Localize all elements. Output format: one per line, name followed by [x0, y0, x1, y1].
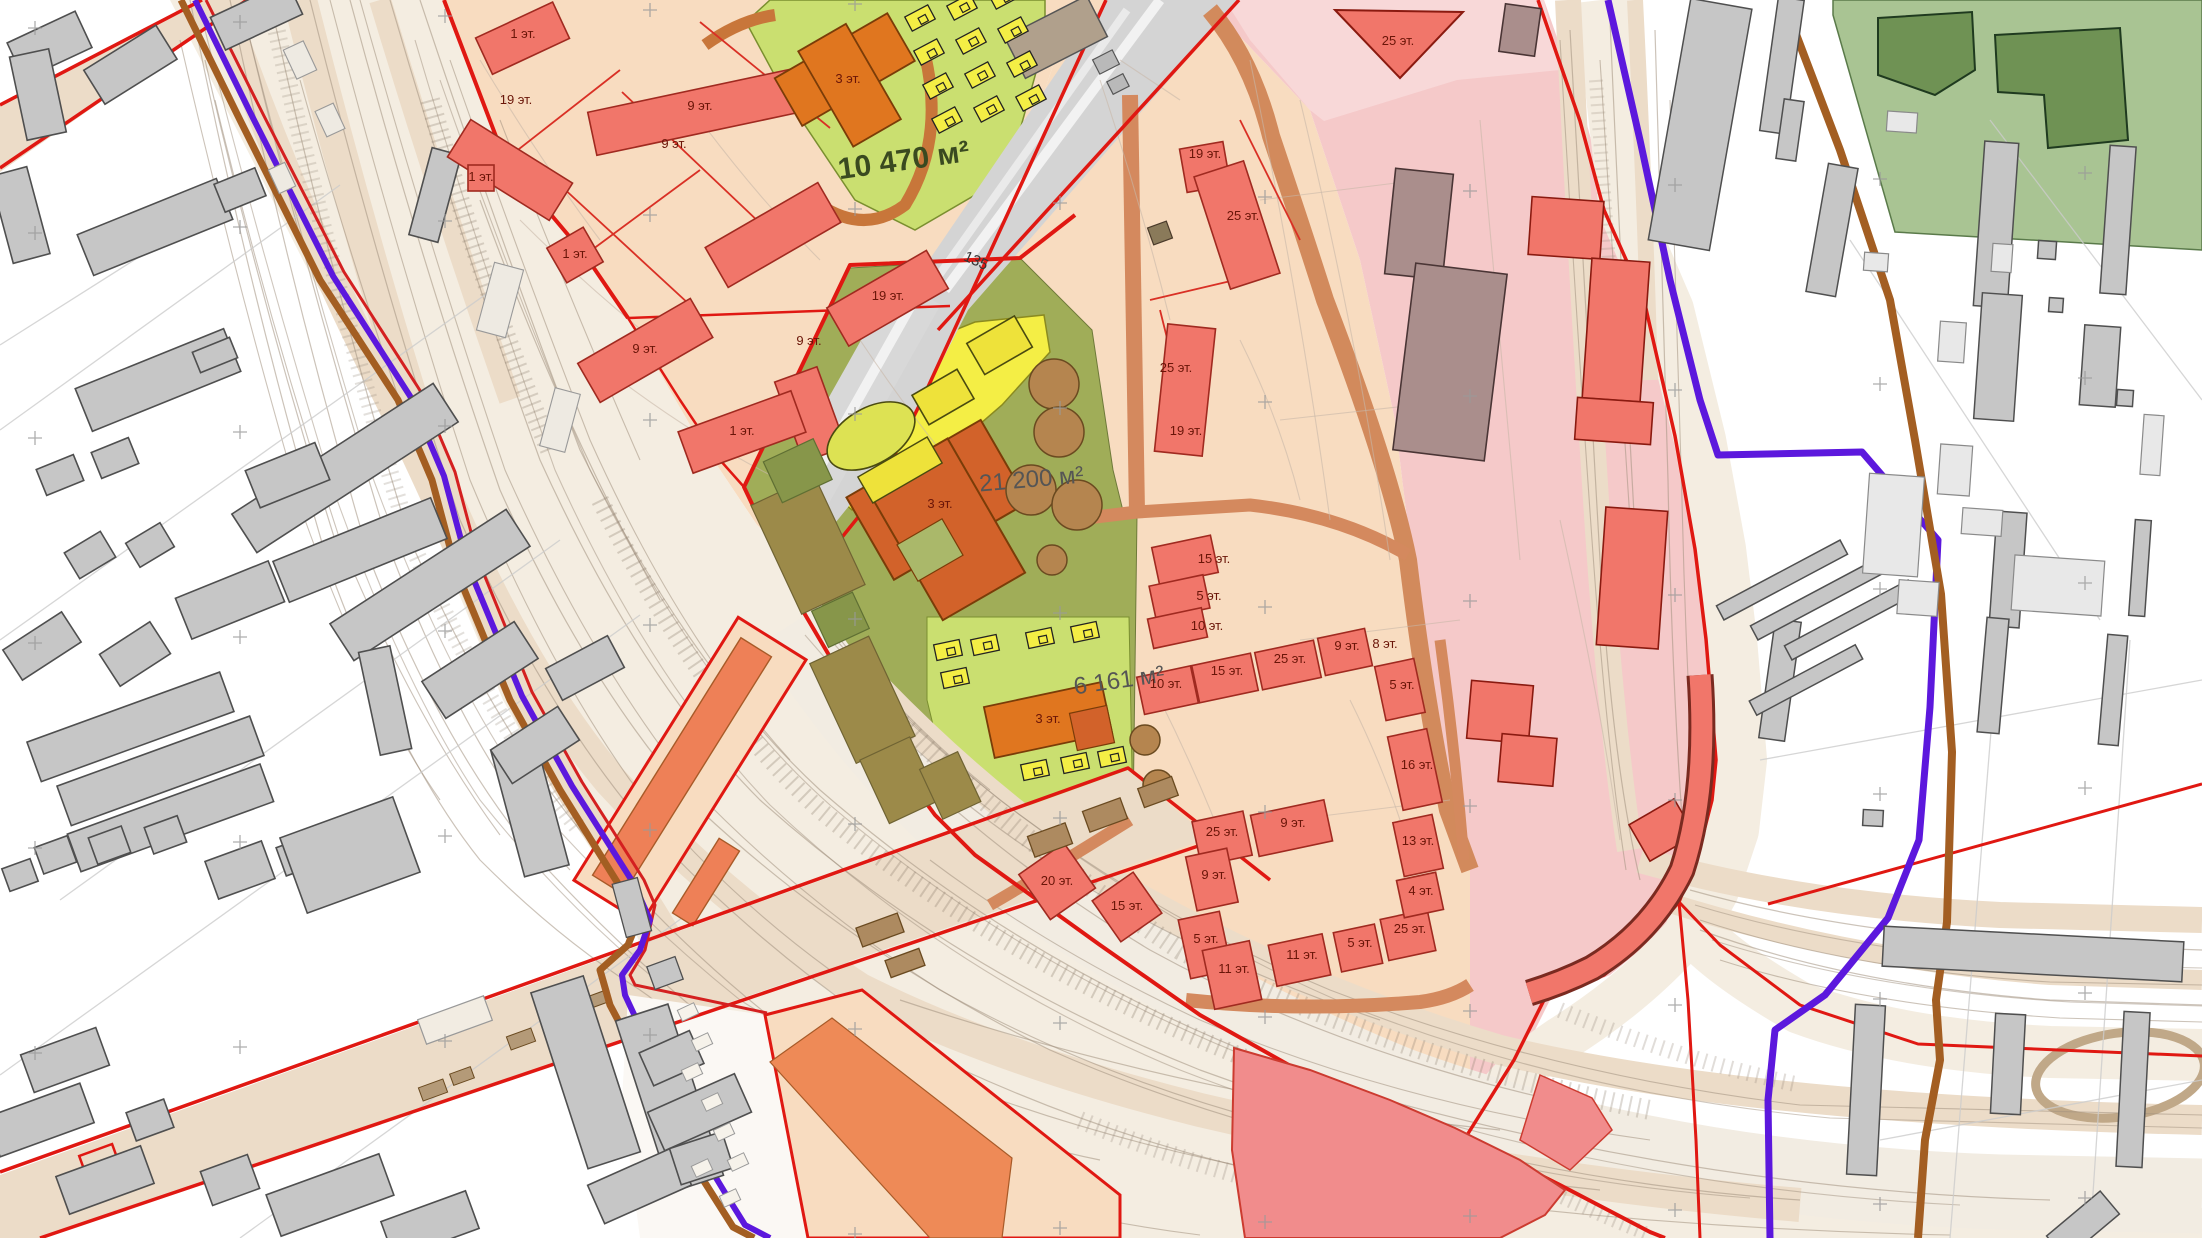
svg-text:25 эт.: 25 эт.	[1160, 360, 1193, 375]
svg-text:15 эт.: 15 эт.	[1198, 551, 1231, 566]
svg-text:15 эт.: 15 эт.	[1111, 898, 1144, 913]
svg-text:25 эт.: 25 эт.	[1382, 33, 1415, 48]
svg-text:10 эт.: 10 эт.	[1191, 618, 1224, 633]
svg-text:8 эт.: 8 эт.	[1372, 636, 1397, 651]
svg-text:3 эт.: 3 эт.	[927, 496, 952, 511]
svg-text:1 эт.: 1 эт.	[729, 423, 754, 438]
svg-text:1 эт.: 1 эт.	[468, 169, 493, 184]
svg-text:13 эт.: 13 эт.	[1402, 833, 1435, 848]
svg-text:19 эт.: 19 эт.	[872, 288, 905, 303]
svg-text:5 эт.: 5 эт.	[1193, 931, 1218, 946]
svg-text:5 эт.: 5 эт.	[1196, 588, 1221, 603]
svg-text:5 эт.: 5 эт.	[1389, 677, 1414, 692]
svg-text:3 эт.: 3 эт.	[1035, 711, 1060, 726]
svg-text:19 эт.: 19 эт.	[1170, 423, 1203, 438]
svg-text:25 эт.: 25 эт.	[1227, 208, 1260, 223]
svg-text:9 эт.: 9 эт.	[687, 98, 712, 113]
svg-text:3 эт.: 3 эт.	[835, 71, 860, 86]
svg-text:9 эт.: 9 эт.	[1280, 815, 1305, 830]
svg-text:9 эт.: 9 эт.	[796, 333, 821, 348]
svg-text:1 эт.: 1 эт.	[510, 26, 535, 41]
svg-text:25 эт.: 25 эт.	[1206, 824, 1239, 839]
svg-text:9 эт.: 9 эт.	[632, 341, 657, 356]
svg-text:11 эт.: 11 эт.	[1286, 947, 1318, 962]
svg-text:16 эт.: 16 эт.	[1401, 757, 1434, 772]
svg-text:1 эт.: 1 эт.	[562, 246, 587, 261]
svg-text:15 эт.: 15 эт.	[1211, 663, 1244, 678]
svg-text:10 эт.: 10 эт.	[1150, 676, 1183, 691]
svg-text:4 эт.: 4 эт.	[1408, 883, 1433, 898]
svg-text:11 эт.: 11 эт.	[1218, 961, 1250, 976]
svg-text:25 эт.: 25 эт.	[1274, 651, 1307, 666]
svg-text:20 эт.: 20 эт.	[1041, 873, 1074, 888]
svg-text:25 эт.: 25 эт.	[1394, 921, 1427, 936]
svg-text:9 эт.: 9 эт.	[1201, 867, 1226, 882]
svg-text:9 эт.: 9 эт.	[1334, 638, 1359, 653]
svg-text:19 эт.: 19 эт.	[1189, 146, 1222, 161]
svg-text:5 эт.: 5 эт.	[1347, 935, 1372, 950]
svg-text:9 эт.: 9 эт.	[661, 136, 686, 151]
svg-text:19 эт.: 19 эт.	[500, 92, 533, 107]
